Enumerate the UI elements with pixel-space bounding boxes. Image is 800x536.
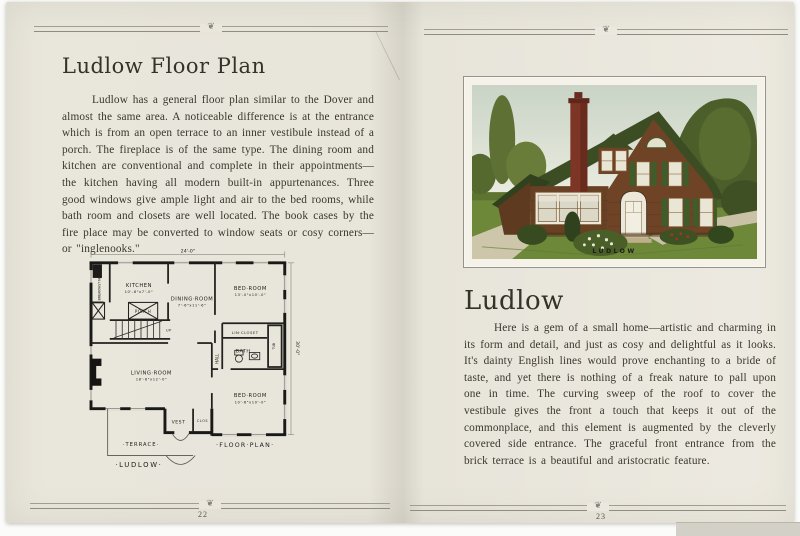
rule-ornament-icon: ❦: [602, 24, 610, 34]
plan-caption: ·FLOOR·PLAN·: [216, 442, 274, 449]
illustration-caption: LUDLOW: [592, 248, 636, 255]
room-label-breakfast-nook: BREAKFAST·NOOK: [97, 270, 101, 300]
plan-dim-depth: 30'-0": [294, 341, 300, 355]
rule-ornament-icon: ❦: [594, 500, 602, 510]
rule-ornament-icon: ❦: [206, 498, 214, 508]
room-dims-dining: 7'-6"x11'-6": [178, 304, 207, 308]
plan-dim-width: 24'-0": [181, 248, 195, 254]
room-label-dining: DINING·ROOM: [171, 296, 213, 302]
page-title: Ludlow Floor Plan: [62, 54, 266, 78]
plan-name: ·LUDLOW·: [115, 461, 162, 469]
top-divider-right: ❦: [424, 29, 788, 35]
page-number-right: 23: [596, 512, 606, 521]
room-label-bath: BATH: [236, 348, 251, 354]
plan-label-up: UP: [166, 329, 172, 333]
room-label-clos: CLOS: [197, 419, 208, 423]
room-label-closet: LIN·CLOSET: [232, 331, 259, 335]
shrub: [708, 226, 734, 244]
shrub: [517, 225, 547, 245]
page-title: Ludlow: [464, 286, 564, 316]
rule-ornament-icon: ❦: [207, 21, 215, 31]
room-label-kitchen: KITCHEN: [126, 283, 152, 289]
floor-plan-drawing: 24'-0" 30'-0": [66, 242, 316, 492]
room-label-hall: HALL: [215, 353, 220, 364]
room-label-living: LIVING·ROOM: [131, 370, 172, 376]
body-paragraph: Here is a gem of a small home—artistic a…: [464, 320, 776, 469]
top-divider-left: ❦: [34, 26, 388, 32]
room-dims-bed1: 13'-0"x10'-0": [235, 293, 266, 297]
room-label-bed1: BED·ROOM: [234, 286, 267, 292]
bottom-divider-left: ❦: [30, 503, 390, 509]
page-number-left: 22: [198, 510, 208, 519]
room-dims-bed2: 10'-6"x10'-0": [235, 400, 266, 404]
house-illustration: LUDLOW: [463, 76, 766, 268]
bottom-divider-right: ❦: [410, 505, 786, 511]
room-dims-living: 18'-6"x12'-0": [136, 378, 167, 382]
body-paragraph: Ludlow has a general floor plan similar …: [62, 92, 374, 258]
room-dims-kitchen: 10'-6"x7'-0": [125, 290, 154, 294]
room-label-vest: VEST: [172, 419, 186, 425]
front-windows: [662, 198, 717, 226]
plan-label-terrace: ·TERRACE·: [123, 442, 159, 448]
room-label-porch: PORCH: [135, 309, 151, 314]
left-page: ❦ Ludlow Floor Plan Ludlow has a general…: [0, 0, 400, 535]
flower-bed: [660, 229, 698, 245]
right-page: ❦: [400, 0, 800, 535]
room-label-bed2: BED·ROOM: [234, 393, 267, 399]
room-label-tub: TUB: [272, 343, 276, 351]
